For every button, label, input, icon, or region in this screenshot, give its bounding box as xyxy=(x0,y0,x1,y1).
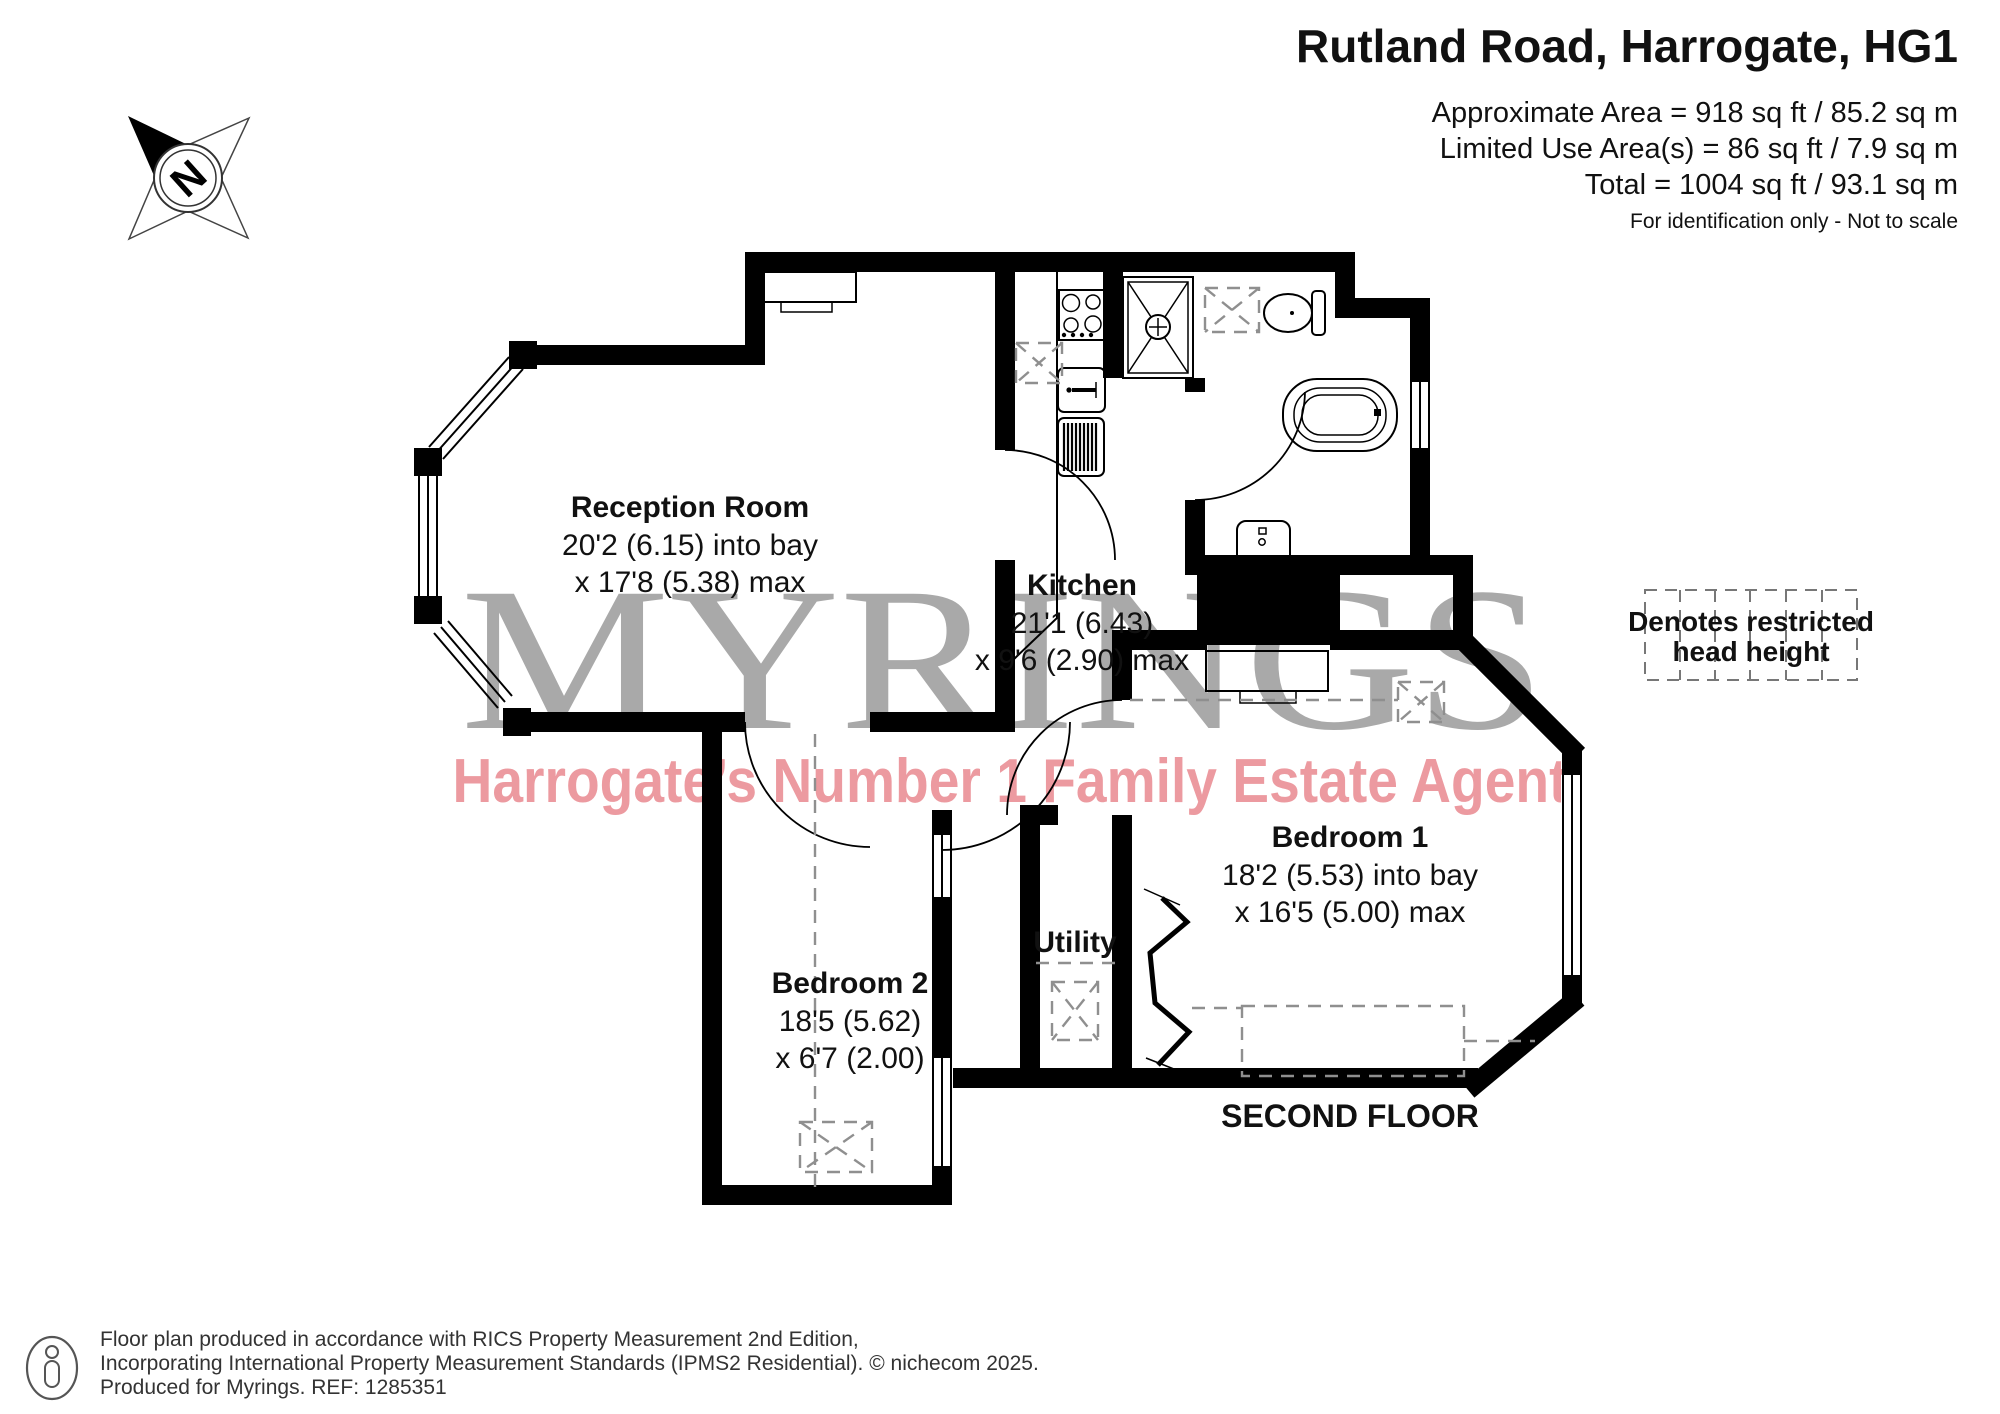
reception-fireplace xyxy=(757,272,856,312)
bedroom1-name: Bedroom 1 xyxy=(1272,821,1429,854)
bedroom2-name: Bedroom 2 xyxy=(772,967,929,1000)
compass-icon: N xyxy=(128,116,249,239)
utility-name: Utility xyxy=(1033,926,1117,959)
kitchen-dim2: x 9'6 (2.90) max xyxy=(975,644,1189,677)
legend: Denotes restricted head height xyxy=(1628,590,1874,680)
chimney-block xyxy=(1197,557,1340,645)
bay-window-top xyxy=(429,357,523,459)
bay-window-left xyxy=(419,476,437,596)
utility-restricted-box xyxy=(1052,982,1098,1040)
reception-dim1: 20'2 (6.15) into bay xyxy=(562,529,818,562)
bedroom2-dim2: x 6'7 (2.00) xyxy=(775,1042,924,1075)
bedroom2-dim1: 18'5 (5.62) xyxy=(779,1005,922,1038)
bedroom2-window-lower xyxy=(931,1058,953,1166)
bedroom2-restricted-box xyxy=(800,1122,872,1172)
label-reception: Reception Room 20'2 (6.15) into bay x 17… xyxy=(562,491,818,599)
person-icon xyxy=(27,1337,77,1399)
footer: Floor plan produced in accordance with R… xyxy=(27,1328,1039,1399)
door-arc-kitchen xyxy=(1005,450,1115,560)
footer-line1: Floor plan produced in accordance with R… xyxy=(100,1328,859,1351)
total-area: Total = 1004 sq ft / 93.1 sq m xyxy=(1585,169,1958,201)
door-arc-bathroom xyxy=(1195,392,1305,500)
bedroom1-zigzag-line xyxy=(1144,889,1189,1073)
bathroom-window xyxy=(1409,382,1431,448)
approximate-area: Approximate Area = 918 sq ft / 85.2 sq m xyxy=(1432,97,1958,129)
floorplan-page: MYRINGS Harrogate’s Number 1 Family Esta… xyxy=(0,0,2000,1414)
label-bedroom1: Bedroom 1 18'2 (5.53) into bay x 16'5 (5… xyxy=(1222,821,1478,929)
shower-icon xyxy=(1123,277,1193,378)
page-title: Rutland Road, Harrogate, HG1 xyxy=(1296,20,1958,72)
bathroom-restricted-box xyxy=(1205,288,1259,332)
identification-note: For identification only - Not to scale xyxy=(1630,210,1958,233)
floorplan-canvas: MYRINGS Harrogate’s Number 1 Family Esta… xyxy=(0,0,2000,1414)
bathroom-fixtures xyxy=(1123,277,1397,565)
label-bedroom2: Bedroom 2 18'5 (5.62) x 6'7 (2.00) xyxy=(772,967,929,1075)
footer-line2: Incorporating International Property Mea… xyxy=(100,1352,1039,1375)
header: Rutland Road, Harrogate, HG1 Approximate… xyxy=(1296,20,1958,233)
bedroom1-dim2: x 16'5 (5.00) max xyxy=(1235,896,1466,929)
bedroom1-restricted-rect xyxy=(1242,1006,1464,1076)
bedroom2-window-upper xyxy=(931,835,953,897)
toilet-icon xyxy=(1264,291,1325,335)
legend-line2: head height xyxy=(1672,636,1829,667)
bathtub-icon xyxy=(1283,379,1397,451)
kitchen-restricted-box xyxy=(1016,343,1062,383)
kitchen-name: Kitchen xyxy=(1027,569,1137,602)
bedroom1-window xyxy=(1561,775,1583,975)
footer-line3: Produced for Myrings. REF: 1285351 xyxy=(100,1376,447,1399)
sink-icon xyxy=(1058,368,1105,412)
kitchen-dim1: 21'1 (6.43) xyxy=(1011,607,1154,640)
floor-label: SECOND FLOOR xyxy=(1221,1098,1479,1134)
draining-board-icon xyxy=(1058,418,1104,476)
reception-name: Reception Room xyxy=(571,491,809,524)
watermark-slogan-text: Harrogate’s Number 1 Family Estate Agent xyxy=(453,747,1568,816)
bedroom1-dim1: 18'2 (5.53) into bay xyxy=(1222,859,1478,892)
reception-dim2: x 17'8 (5.38) max xyxy=(575,566,806,599)
legend-line1: Denotes restricted xyxy=(1628,606,1874,637)
hob-icon xyxy=(1059,290,1105,340)
limited-use-area: Limited Use Area(s) = 86 sq ft / 7.9 sq … xyxy=(1440,133,1958,165)
